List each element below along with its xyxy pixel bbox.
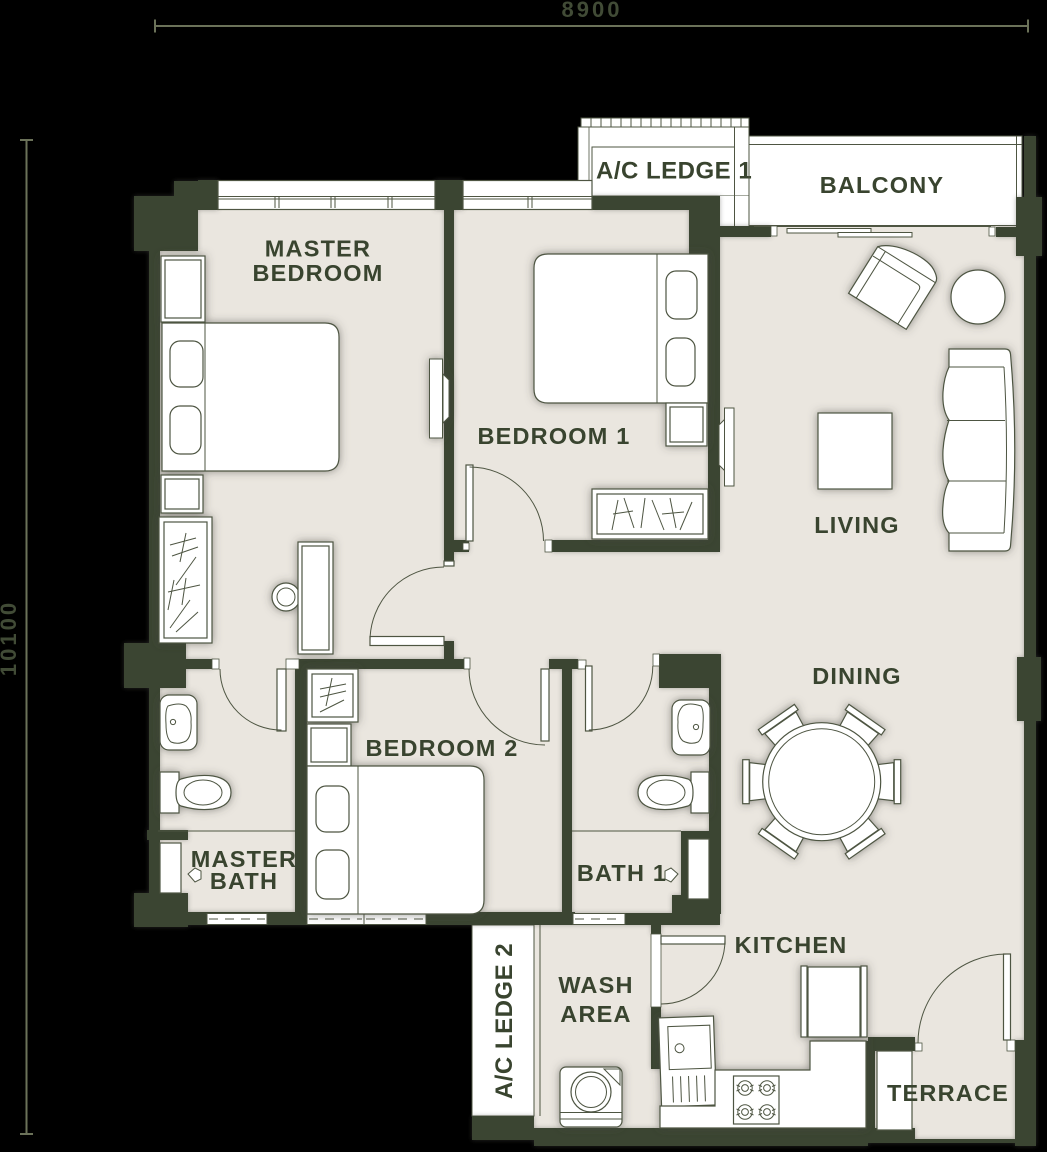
svg-text:8900: 8900 — [562, 0, 623, 22]
svg-text:AREA: AREA — [560, 1001, 631, 1027]
svg-text:MASTER: MASTER — [265, 236, 371, 262]
svg-text:DINING: DINING — [812, 663, 901, 689]
svg-text:TERRACE: TERRACE — [887, 1080, 1009, 1106]
svg-text:10100: 10100 — [0, 600, 21, 676]
svg-text:BEDROOM 1: BEDROOM 1 — [477, 423, 630, 449]
svg-text:A/C LEDGE 1: A/C LEDGE 1 — [596, 158, 752, 185]
svg-text:BATH: BATH — [210, 868, 278, 894]
svg-text:WASH: WASH — [558, 972, 633, 998]
svg-text:A/C LEDGE 2: A/C LEDGE 2 — [491, 943, 518, 1099]
svg-text:KITCHEN: KITCHEN — [735, 932, 848, 958]
svg-text:BALCONY: BALCONY — [820, 172, 945, 198]
svg-text:BEDROOM: BEDROOM — [252, 260, 383, 286]
svg-text:BEDROOM 2: BEDROOM 2 — [365, 735, 518, 761]
svg-text:BATH 1: BATH 1 — [577, 860, 667, 886]
svg-text:LIVING: LIVING — [814, 512, 900, 538]
